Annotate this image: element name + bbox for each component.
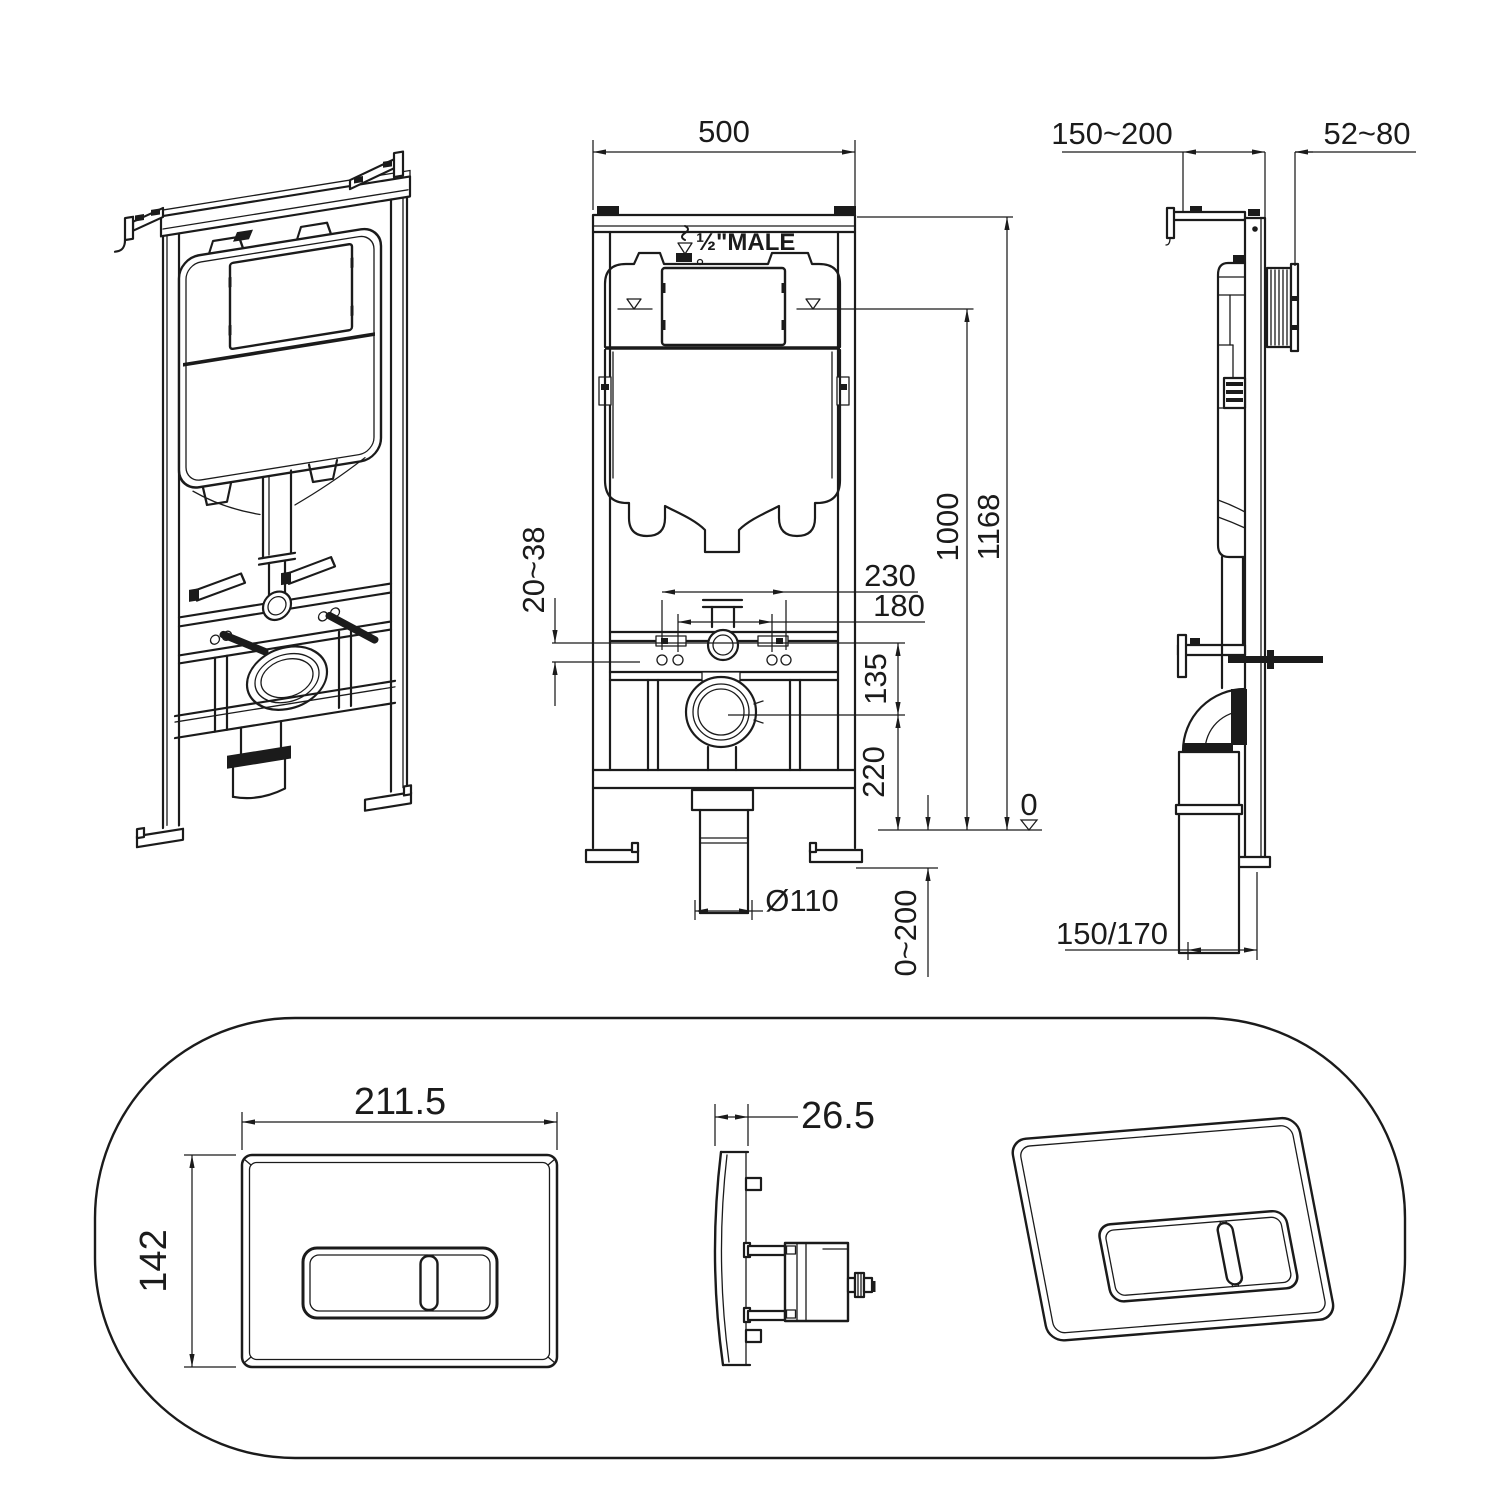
- supply-thread-label: ½"MALE: [696, 229, 795, 256]
- dim-front-width: 500: [698, 114, 750, 149]
- wall-anchor-right: [834, 206, 856, 215]
- dim-front-fixing-offset: 20~38: [516, 526, 551, 613]
- dim-front-drain-height: 220: [856, 746, 891, 798]
- dim-side-outlet-offset: 150/170: [1056, 916, 1168, 951]
- wall-anchor-left: [597, 206, 619, 215]
- dim-front-outlet-diameter: Ø110: [765, 883, 839, 918]
- outlet-stub-iso: [227, 720, 291, 803]
- fixing-arm-left-iso: [189, 573, 245, 602]
- actuator-shaft-side: [1267, 264, 1298, 351]
- dim-front-tank-height: 1000: [930, 493, 965, 562]
- threaded-rod-side: [1228, 656, 1323, 663]
- dim-plate-thickness: 26.5: [801, 1095, 875, 1137]
- dim-plate-height: 142: [133, 1229, 175, 1292]
- flush-button-perspective[interactable]: [1097, 1210, 1299, 1302]
- water-level-icon-left: [618, 299, 652, 309]
- access-panel: [662, 268, 785, 345]
- dim-front-span-inner: 180: [873, 588, 925, 623]
- frame-foot-side: [1238, 857, 1270, 867]
- water-level-icon-right: [797, 299, 973, 309]
- flush-plate-panel: 211.5 142: [95, 1018, 1405, 1458]
- dim-front-fixing-to-drain: 135: [858, 653, 893, 705]
- supply-connection: [676, 253, 692, 262]
- flush-pipe-front: [703, 600, 742, 660]
- frame-foot-right-iso: [365, 785, 411, 810]
- cistern-side: [1218, 255, 1245, 557]
- frame-upright-side: [1245, 218, 1265, 863]
- drain-elbow-side: [1176, 557, 1247, 953]
- dim-plate-width: 211.5: [354, 1081, 446, 1123]
- cistern-front: [605, 253, 973, 552]
- drain-connector-front: [686, 672, 763, 770]
- drawing-sheet: 500 1168 1000 0 230 180 20~38 135 220: [0, 0, 1500, 1500]
- front-dimensions: 500 1168 1000 0 230 180 20~38 135 220: [516, 114, 1042, 977]
- plate-perspective-view: [1010, 1117, 1336, 1342]
- dim-front-datum: 0: [1020, 787, 1037, 822]
- cistern-iso: [179, 209, 381, 527]
- dim-side-actuator-depth: 52~80: [1323, 116, 1410, 151]
- frame-foot-left-iso: [137, 822, 183, 847]
- flush-button-front[interactable]: [303, 1248, 497, 1318]
- wall-bracket-left-iso: [115, 208, 163, 252]
- dim-front-floor-range: 0~200: [888, 889, 923, 976]
- isometric-view: [115, 150, 411, 850]
- dim-side-frame-depth: 150~200: [1051, 116, 1173, 151]
- outlet-pipe-front: [692, 790, 753, 913]
- dim-front-total-height: 1168: [971, 494, 1006, 561]
- technical-drawing-canvas: 500 1168 1000 0 230 180 20~38 135 220: [0, 0, 1500, 1500]
- side-view: [1166, 206, 1323, 953]
